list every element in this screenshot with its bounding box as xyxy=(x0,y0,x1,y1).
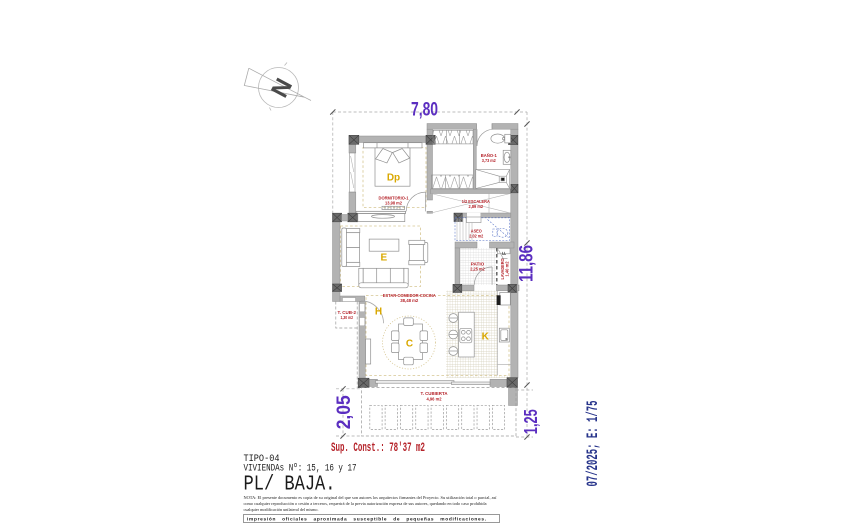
svg-text:impresión oficiales aproxi: impresión oficiales aproximada susceptib… xyxy=(247,516,487,522)
svg-text:1,30 m2: 1,30 m2 xyxy=(341,315,354,320)
svg-text:7,80: 7,80 xyxy=(411,100,438,121)
svg-text:cualquier modificación unilate: cualquier modificación unilateral del mi… xyxy=(244,507,319,512)
svg-text:38,48 m2: 38,48 m2 xyxy=(400,298,419,303)
svg-text:Dp: Dp xyxy=(387,173,400,184)
svg-text:2,05: 2,05 xyxy=(334,395,355,429)
svg-text:1,25: 1,25 xyxy=(521,409,541,434)
svg-text:3,73 m2: 3,73 m2 xyxy=(482,158,496,163)
svg-text:13,98 m2: 13,98 m2 xyxy=(385,201,403,206)
svg-text:H: H xyxy=(375,306,382,317)
svg-text:C: C xyxy=(406,338,413,349)
svg-text:2,25 m2: 2,25 m2 xyxy=(470,267,485,272)
svg-text:Sup. Const.: 78'37 m2: Sup. Const.: 78'37 m2 xyxy=(331,440,425,455)
svg-text:07/2025; E: 1/75: 07/2025; E: 1/75 xyxy=(584,401,602,487)
svg-text:E: E xyxy=(380,252,387,263)
svg-text:2,89 m2: 2,89 m2 xyxy=(469,204,484,209)
svg-text:K: K xyxy=(482,332,490,343)
svg-text:2,02 m2: 2,02 m2 xyxy=(469,233,483,238)
svg-text:4,96 m2: 4,96 m2 xyxy=(427,396,443,401)
svg-text:PL/ BAJA.: PL/ BAJA. xyxy=(244,474,336,497)
svg-text:11,86: 11,86 xyxy=(517,245,538,282)
svg-text:1,40 m2: 1,40 m2 xyxy=(505,261,510,277)
